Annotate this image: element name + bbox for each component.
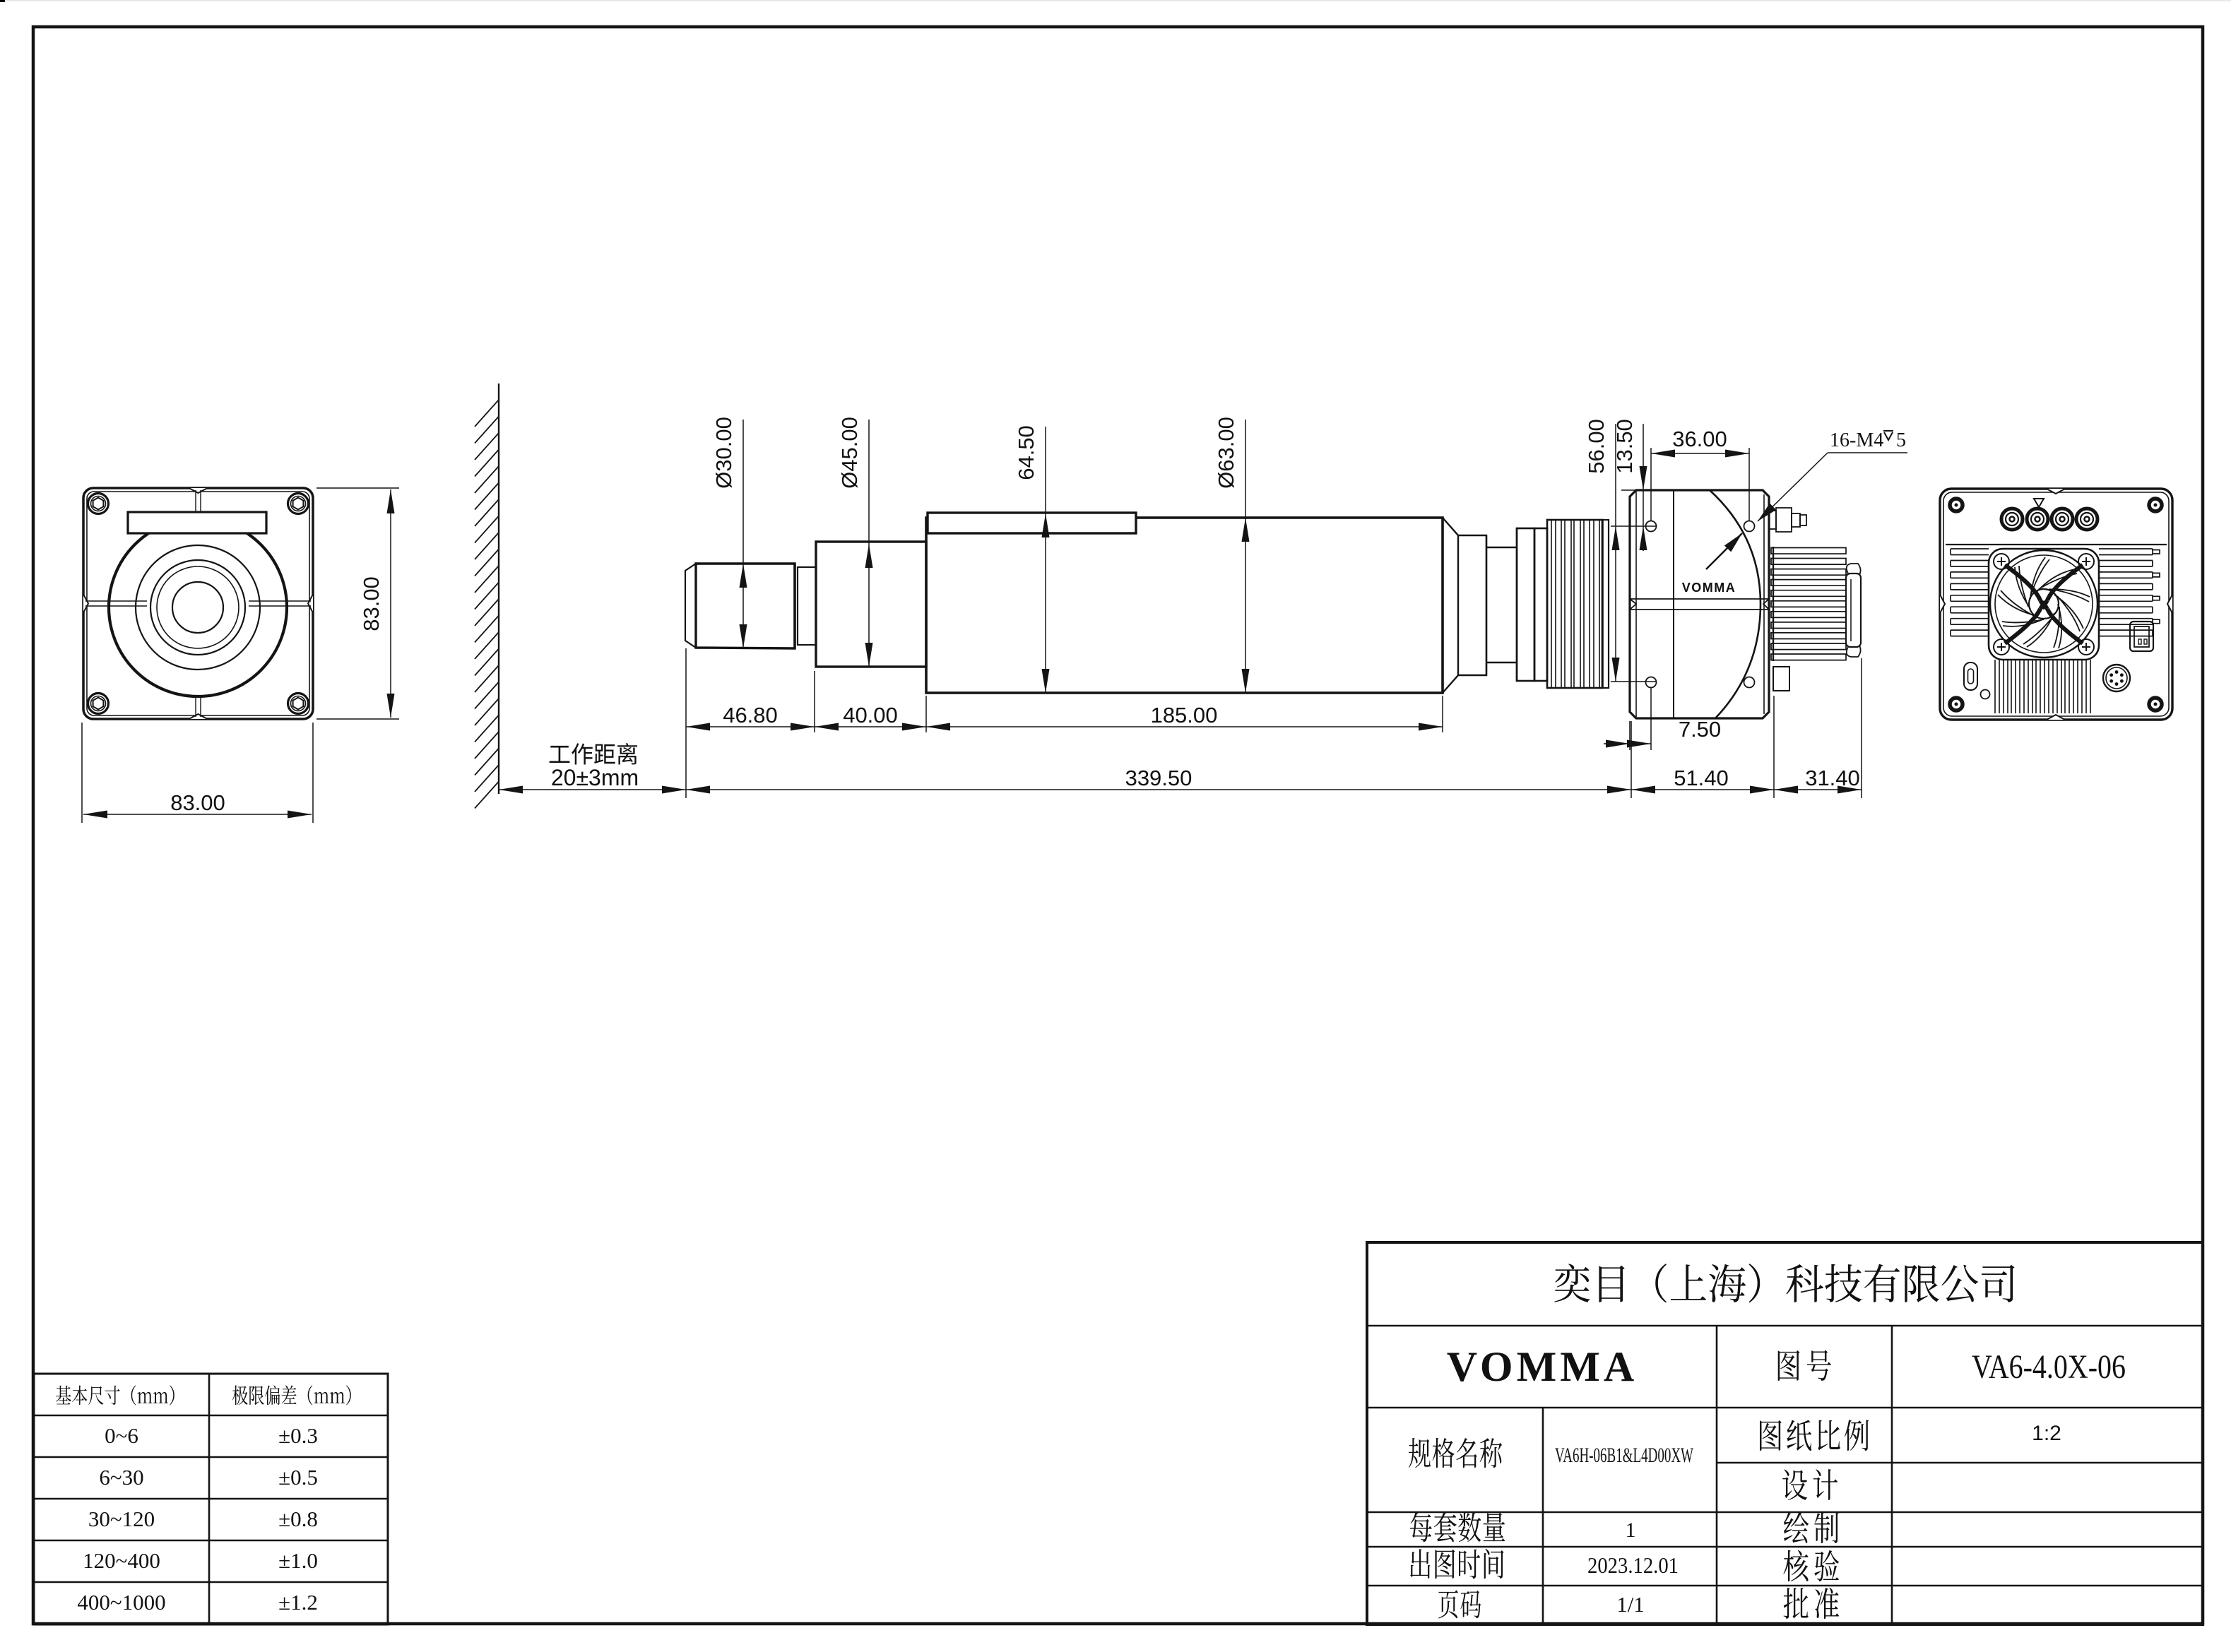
svg-text:Ø45.00: Ø45.00 — [837, 417, 862, 489]
svg-text:Ø63.00: Ø63.00 — [1214, 417, 1238, 489]
svg-text:40.00: 40.00 — [843, 703, 898, 727]
svg-text:46.80: 46.80 — [723, 703, 778, 727]
svg-text:7.50: 7.50 — [1679, 717, 1721, 742]
svg-text:120~400: 120~400 — [83, 1548, 160, 1573]
svg-text:185.00: 185.00 — [1151, 703, 1218, 727]
svg-text:±0.5: ±0.5 — [278, 1465, 318, 1490]
svg-text:339.50: 339.50 — [1125, 766, 1193, 790]
svg-text:5: 5 — [1896, 429, 1906, 451]
svg-text:16-M4: 16-M4 — [1830, 429, 1883, 451]
svg-text:1: 1 — [1626, 1519, 1636, 1542]
svg-text:VA6-4.0X-06: VA6-4.0X-06 — [1972, 1348, 2126, 1386]
svg-text:51.40: 51.40 — [1674, 766, 1729, 790]
svg-text:13.50: 13.50 — [1612, 419, 1637, 474]
svg-text:83.00: 83.00 — [170, 790, 225, 815]
svg-text:Ø30.00: Ø30.00 — [711, 417, 736, 489]
svg-text:1:2: 1:2 — [2032, 1422, 2061, 1445]
svg-text:±0.3: ±0.3 — [278, 1423, 318, 1448]
svg-text:1/1: 1/1 — [1616, 1592, 1645, 1617]
svg-text:64.50: 64.50 — [1014, 425, 1038, 480]
svg-text:83.00: 83.00 — [359, 576, 384, 631]
svg-text:±0.8: ±0.8 — [278, 1507, 318, 1531]
svg-text:400~1000: 400~1000 — [77, 1590, 165, 1615]
svg-text:VOMMA: VOMMA — [1447, 1343, 1638, 1390]
svg-text:20±3mm: 20±3mm — [551, 765, 639, 790]
svg-text:±1.2: ±1.2 — [278, 1590, 318, 1615]
svg-text:VA6H-06B1&L4D00XW: VA6H-06B1&L4D00XW — [1555, 1444, 1693, 1467]
svg-text:31.40: 31.40 — [1805, 766, 1860, 790]
svg-text:36.00: 36.00 — [1672, 427, 1727, 451]
svg-text:6~30: 6~30 — [99, 1465, 143, 1490]
svg-text:56.00: 56.00 — [1584, 419, 1609, 474]
svg-text:±1.0: ±1.0 — [278, 1548, 318, 1573]
svg-text:2023.12.01: 2023.12.01 — [1587, 1552, 1679, 1578]
svg-text:VOMMA: VOMMA — [1682, 581, 1736, 595]
svg-text:30~120: 30~120 — [88, 1507, 155, 1531]
svg-text:0~6: 0~6 — [105, 1423, 138, 1448]
